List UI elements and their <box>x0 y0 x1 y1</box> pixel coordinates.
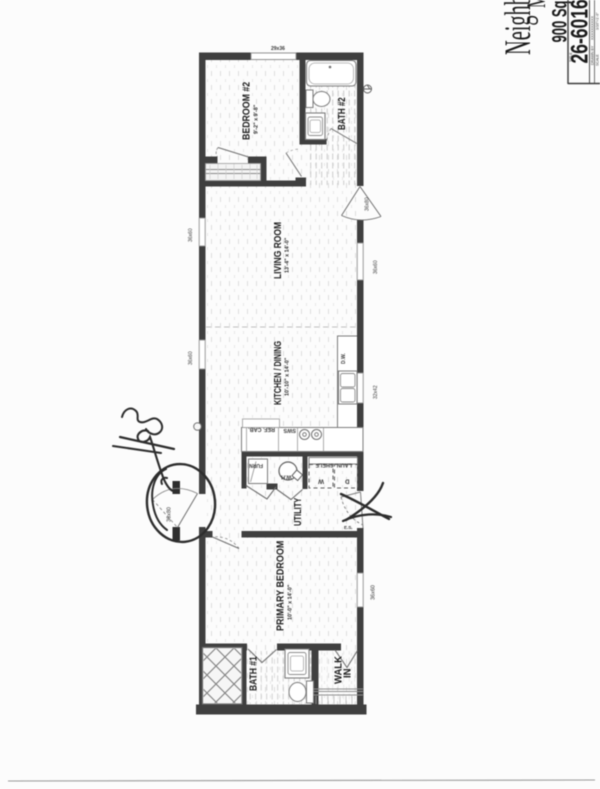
svg-text:10'-0" x 14'-0": 10'-0" x 14'-0" <box>288 584 294 620</box>
svg-text:36x60: 36x60 <box>188 351 194 365</box>
svg-text:13'-4" x 14'-0": 13'-4" x 14'-0" <box>285 237 291 273</box>
svg-text:W: W <box>318 478 324 485</box>
svg-text:BATH #2: BATH #2 <box>336 97 347 130</box>
svg-text:SCALE: SCALE <box>596 54 600 66</box>
svg-text:D.W.: D.W. <box>341 353 347 364</box>
svg-text:IN: IN <box>342 669 353 678</box>
svg-text:LIVING ROOM: LIVING ROOM <box>272 222 283 279</box>
svg-text:3/16"=1'-0": 3/16"=1'-0" <box>596 12 600 30</box>
svg-text:W.H.: W.H. <box>279 474 291 480</box>
svg-text:BEDROOM #2: BEDROOM #2 <box>240 82 252 140</box>
svg-text:TITLE: TITLE <box>569 52 573 62</box>
svg-text:D: D <box>345 478 350 485</box>
svg-text:10'-10" x 14'-0": 10'-10" x 14'-0" <box>285 357 291 396</box>
svg-text:36x60: 36x60 <box>371 585 377 600</box>
svg-text:XXXXXXXXXX: XXXXXXXXXX <box>591 15 595 40</box>
svg-text:BATH #1: BATH #1 <box>248 656 259 691</box>
svg-text:E.S.: E.S. <box>344 525 353 530</box>
svg-text:PRIMARY BEDROOM: PRIMARY BEDROOM <box>275 541 287 631</box>
svg-text:DRAWN BY: DRAWN BY <box>591 45 595 65</box>
svg-text:36x80: 36x80 <box>167 507 173 522</box>
svg-text:36x80: 36x80 <box>365 197 371 211</box>
svg-text:9'-2" x 9'-8": 9'-2" x 9'-8" <box>254 104 260 134</box>
svg-text:FURN: FURN <box>249 462 263 468</box>
svg-text:UTILITY: UTILITY <box>292 498 303 526</box>
svg-text:32x42: 32x42 <box>373 385 379 399</box>
svg-text:36x60: 36x60 <box>373 260 379 274</box>
svg-text:KITCHEN / DINING: KITCHEN / DINING <box>272 341 283 405</box>
svg-text:SWS: SWS <box>283 427 296 433</box>
svg-text:29x36: 29x36 <box>271 46 285 52</box>
svg-text:36x60: 36x60 <box>188 228 194 242</box>
